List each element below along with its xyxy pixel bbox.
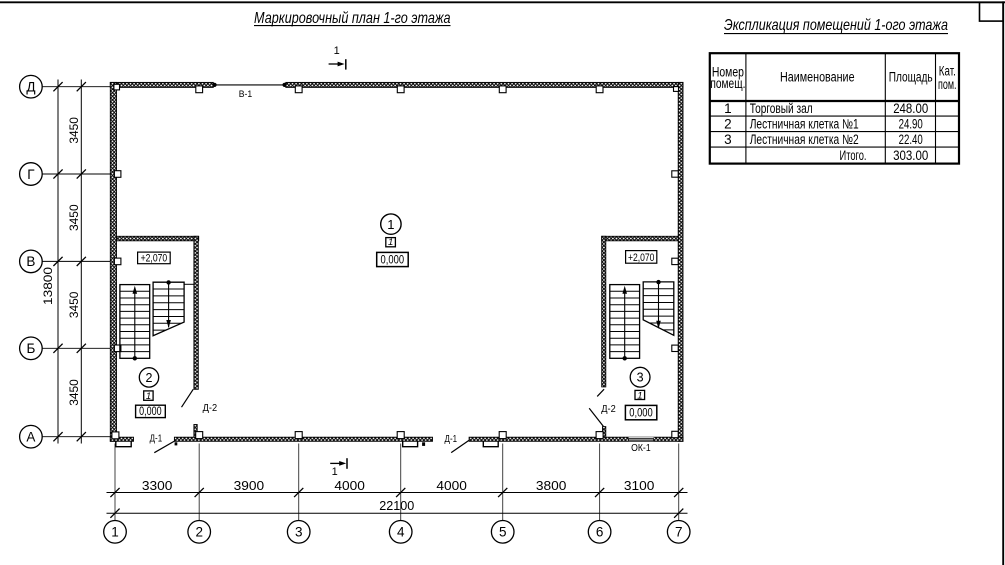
svg-text:Торговый зал: Торговый зал — [750, 101, 813, 116]
svg-text:3: 3 — [724, 132, 732, 147]
svg-text:1: 1 — [111, 525, 119, 540]
svg-text:Д-2: Д-2 — [601, 404, 616, 415]
svg-text:3450: 3450 — [67, 117, 81, 144]
svg-text:5: 5 — [499, 525, 507, 540]
svg-text:0,000: 0,000 — [629, 406, 653, 420]
svg-text:1: 1 — [387, 217, 394, 232]
svg-text:6: 6 — [596, 525, 604, 540]
svg-text:пом.: пом. — [938, 77, 957, 92]
svg-text:4000: 4000 — [436, 479, 467, 493]
svg-text:3300: 3300 — [142, 479, 173, 493]
svg-text:1: 1 — [388, 237, 393, 248]
svg-text:303.00: 303.00 — [893, 148, 928, 163]
svg-text:24.90: 24.90 — [899, 116, 923, 131]
svg-text:3100: 3100 — [624, 479, 655, 493]
svg-text:Лестничная клетка №1: Лестничная клетка №1 — [750, 116, 859, 131]
svg-text:0,000: 0,000 — [139, 406, 162, 418]
svg-text:Д: Д — [26, 80, 35, 95]
svg-text:0,000: 0,000 — [381, 253, 405, 267]
svg-text:7: 7 — [675, 525, 683, 540]
svg-text:2: 2 — [195, 525, 203, 540]
svg-text:22.40: 22.40 — [899, 132, 923, 147]
svg-text:3450: 3450 — [67, 379, 81, 406]
svg-text:+2,070: +2,070 — [628, 252, 655, 264]
svg-text:1: 1 — [332, 466, 338, 478]
svg-text:3450: 3450 — [67, 291, 81, 318]
svg-text:22100: 22100 — [379, 499, 414, 513]
svg-text:13800: 13800 — [41, 267, 55, 305]
svg-text:Д-2: Д-2 — [203, 403, 218, 414]
svg-text:4000: 4000 — [334, 479, 365, 493]
svg-text:Площадь: Площадь — [889, 69, 933, 84]
svg-text:А: А — [26, 430, 35, 445]
svg-text:Экспликация помещений 1-ого эт: Экспликация помещений 1-ого этажа — [724, 17, 948, 34]
svg-text:1: 1 — [146, 391, 151, 402]
svg-text:Наименование: Наименование — [780, 69, 855, 84]
svg-text:В-1: В-1 — [239, 89, 253, 100]
svg-text:Д-1: Д-1 — [150, 434, 163, 445]
svg-text:Итого.: Итого. — [840, 148, 867, 163]
svg-text:Д-1: Д-1 — [445, 434, 458, 445]
svg-text:3450: 3450 — [67, 204, 81, 231]
svg-text:ОК-1: ОК-1 — [631, 442, 651, 454]
svg-text:3800: 3800 — [536, 479, 567, 493]
svg-text:Б: Б — [26, 341, 35, 356]
svg-text:1: 1 — [724, 101, 732, 116]
svg-text:4: 4 — [397, 525, 405, 540]
svg-text:В: В — [26, 254, 35, 269]
svg-text:Маркировочный план 1-го этажа: Маркировочный план 1-го этажа — [254, 10, 451, 27]
svg-text:+2,070: +2,070 — [141, 253, 168, 265]
svg-text:помещ.: помещ. — [710, 76, 745, 91]
svg-text:3900: 3900 — [234, 479, 265, 493]
svg-text:1: 1 — [334, 45, 340, 57]
svg-text:2: 2 — [724, 116, 732, 131]
svg-text:248.00: 248.00 — [893, 101, 928, 116]
svg-text:Г: Г — [27, 167, 35, 182]
svg-text:Лестничная клетка №2: Лестничная клетка №2 — [750, 132, 859, 147]
svg-text:3: 3 — [637, 371, 644, 385]
svg-text:2: 2 — [146, 371, 153, 385]
svg-text:3: 3 — [295, 525, 303, 540]
svg-text:1: 1 — [637, 390, 642, 401]
